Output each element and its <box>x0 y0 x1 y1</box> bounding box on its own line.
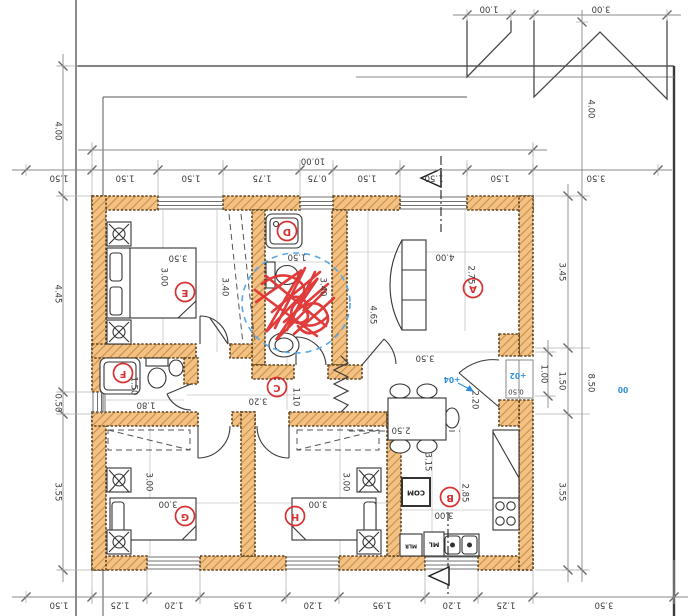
nightstand <box>107 222 131 246</box>
sofa <box>390 240 426 330</box>
nightstand <box>107 530 131 554</box>
appliance-mlr <box>400 534 422 556</box>
door-room-h <box>257 426 289 458</box>
sink-d <box>269 333 299 357</box>
section-markers <box>421 156 449 594</box>
large-gable <box>534 20 667 99</box>
level-leader-arrow <box>458 383 473 391</box>
room-label-circle <box>268 378 287 397</box>
nightstand <box>357 530 381 554</box>
entrance-step <box>506 360 533 398</box>
toilet-f <box>146 358 168 388</box>
pillow <box>110 253 122 281</box>
sink-f <box>169 360 183 376</box>
section-arrow-bottom <box>429 567 449 585</box>
kitchen-counter <box>493 430 519 498</box>
nightstand <box>107 468 131 492</box>
floor-plan-page: 1.501.501.501.750.751.501.501.503.5010.0… <box>0 0 688 616</box>
corridor-dashed-lines <box>229 214 255 344</box>
dining-table <box>388 384 459 453</box>
appliance-com <box>402 478 430 506</box>
door-room-e <box>200 316 228 344</box>
nightstand <box>107 320 131 344</box>
door-side-entrance <box>459 360 499 407</box>
nightstand <box>357 468 381 492</box>
floor-plan-canvas <box>0 0 688 616</box>
section-arrow-top <box>421 169 441 187</box>
room-label-circle <box>441 488 460 507</box>
door-room-g <box>198 426 230 458</box>
stove <box>493 498 519 530</box>
pillow <box>110 287 122 315</box>
room-label-circle <box>464 279 483 298</box>
appliance-ml <box>424 532 444 556</box>
roof-gable-outlines <box>467 20 667 99</box>
small-gable <box>467 20 511 77</box>
door-wc-f <box>167 384 191 410</box>
